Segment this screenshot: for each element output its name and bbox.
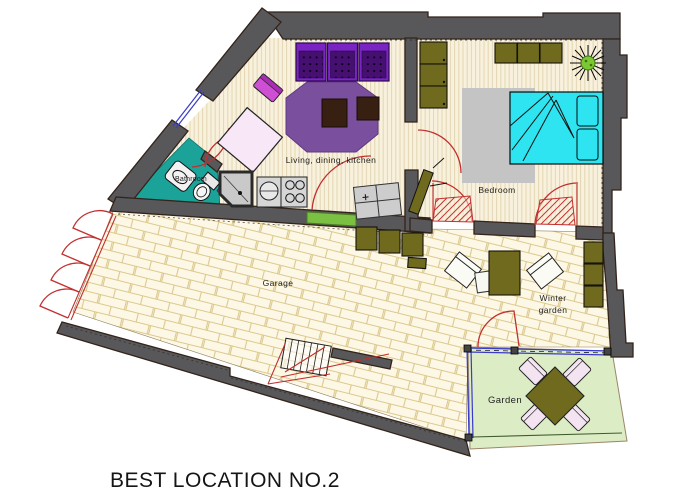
plan-title: BEST LOCATION NO.2	[110, 469, 340, 492]
bedroom-bottom-wall-c	[576, 226, 603, 240]
wg-table	[489, 251, 520, 295]
bedroom-bottom-wall-a	[410, 218, 432, 233]
shower	[220, 172, 252, 206]
right-wall	[603, 39, 627, 233]
bedroom-door-threshold-left	[433, 196, 473, 222]
living-label: Living, dining, kitchen	[286, 155, 376, 165]
kitchen-table	[353, 183, 401, 220]
green-strip	[307, 212, 356, 226]
bedroom-label: Bedroom	[478, 185, 515, 195]
hall-divider-upper	[405, 38, 417, 122]
bedroom-bottom-wall-b	[474, 221, 535, 237]
garden-furniture	[519, 357, 592, 432]
sofa	[296, 43, 389, 81]
coffee-table-2	[357, 97, 379, 120]
kitchen-unit	[257, 177, 307, 207]
potted-plant	[570, 45, 606, 81]
garage-label: Garage	[263, 278, 294, 288]
floor-plan-page: Living, dining, kitchen Bedroom Bathroom…	[0, 0, 700, 500]
top-wall	[265, 12, 620, 39]
bedroom-door-threshold-right	[536, 197, 575, 225]
bedroom-wardrobe	[420, 42, 447, 108]
coffee-table-1	[322, 99, 347, 127]
bathroom-label: Bathroom	[175, 176, 207, 183]
floor-plan-drawing: Living, dining, kitchen Bedroom Bathroom…	[0, 0, 700, 500]
bed	[510, 92, 603, 164]
wg-cabinets	[584, 242, 603, 307]
garden-label: Garden	[488, 395, 522, 406]
winter-garden-label-2: garden	[539, 305, 568, 315]
winter-garden-label-1: Winter	[540, 293, 567, 303]
bedroom-cabinets	[495, 43, 562, 63]
